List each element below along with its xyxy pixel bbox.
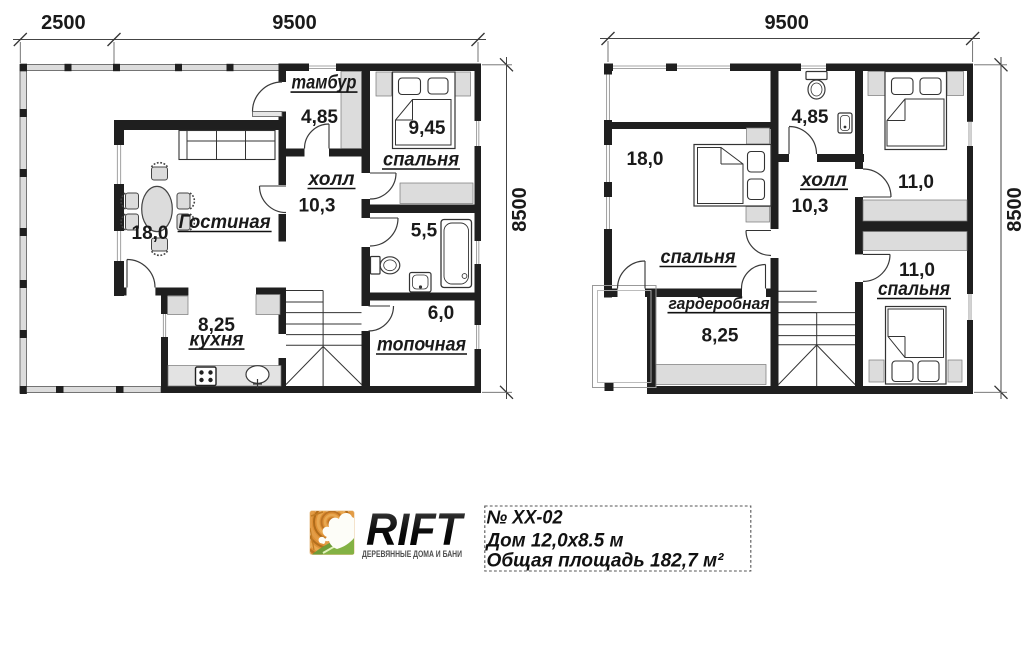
svg-text:тамбур: тамбур [292, 73, 357, 94]
svg-text:11,0: 11,0 [899, 260, 935, 281]
svg-text:8,25: 8,25 [702, 326, 739, 347]
svg-text:5,5: 5,5 [411, 220, 438, 241]
svg-text:4,85: 4,85 [301, 107, 338, 128]
svg-text:18,0: 18,0 [627, 149, 664, 170]
svg-text:гардеробная: гардеробная [669, 294, 770, 313]
svg-text:Гостиная: Гостиная [179, 212, 271, 233]
svg-text:8,25: 8,25 [198, 315, 235, 336]
svg-text:9500: 9500 [764, 12, 809, 34]
svg-text:Общая площадь 182,7 м²: Общая площадь 182,7 м² [487, 551, 725, 572]
svg-text:ДЕРЕВЯННЫЕ ДОМА И БАНИ: ДЕРЕВЯННЫЕ ДОМА И БАНИ [362, 549, 462, 559]
svg-text:топочная: топочная [377, 335, 466, 356]
svg-text:спальня: спальня [383, 150, 459, 171]
svg-text:4,85: 4,85 [792, 107, 829, 128]
svg-text:9500: 9500 [272, 12, 317, 34]
svg-text:холл: холл [800, 170, 847, 191]
svg-text:RIFT: RIFT [366, 504, 465, 555]
svg-text:10,3: 10,3 [299, 196, 336, 217]
svg-text:8500: 8500 [1004, 187, 1026, 232]
svg-text:6,0: 6,0 [428, 303, 454, 324]
svg-text:спальня: спальня [878, 279, 950, 300]
svg-text:8500: 8500 [509, 187, 531, 232]
svg-text:холл: холл [307, 169, 354, 190]
svg-text:Дом 12,0х8.5 м: Дом 12,0х8.5 м [485, 531, 624, 552]
svg-text:2500: 2500 [41, 12, 86, 34]
svg-text:9,45: 9,45 [409, 118, 446, 139]
svg-text:№ ХХ-02: № ХХ-02 [487, 508, 563, 529]
svg-text:10,3: 10,3 [792, 196, 829, 217]
svg-text:11,0: 11,0 [898, 172, 934, 193]
svg-text:18,0: 18,0 [132, 223, 169, 244]
svg-text:спальня: спальня [661, 247, 736, 268]
